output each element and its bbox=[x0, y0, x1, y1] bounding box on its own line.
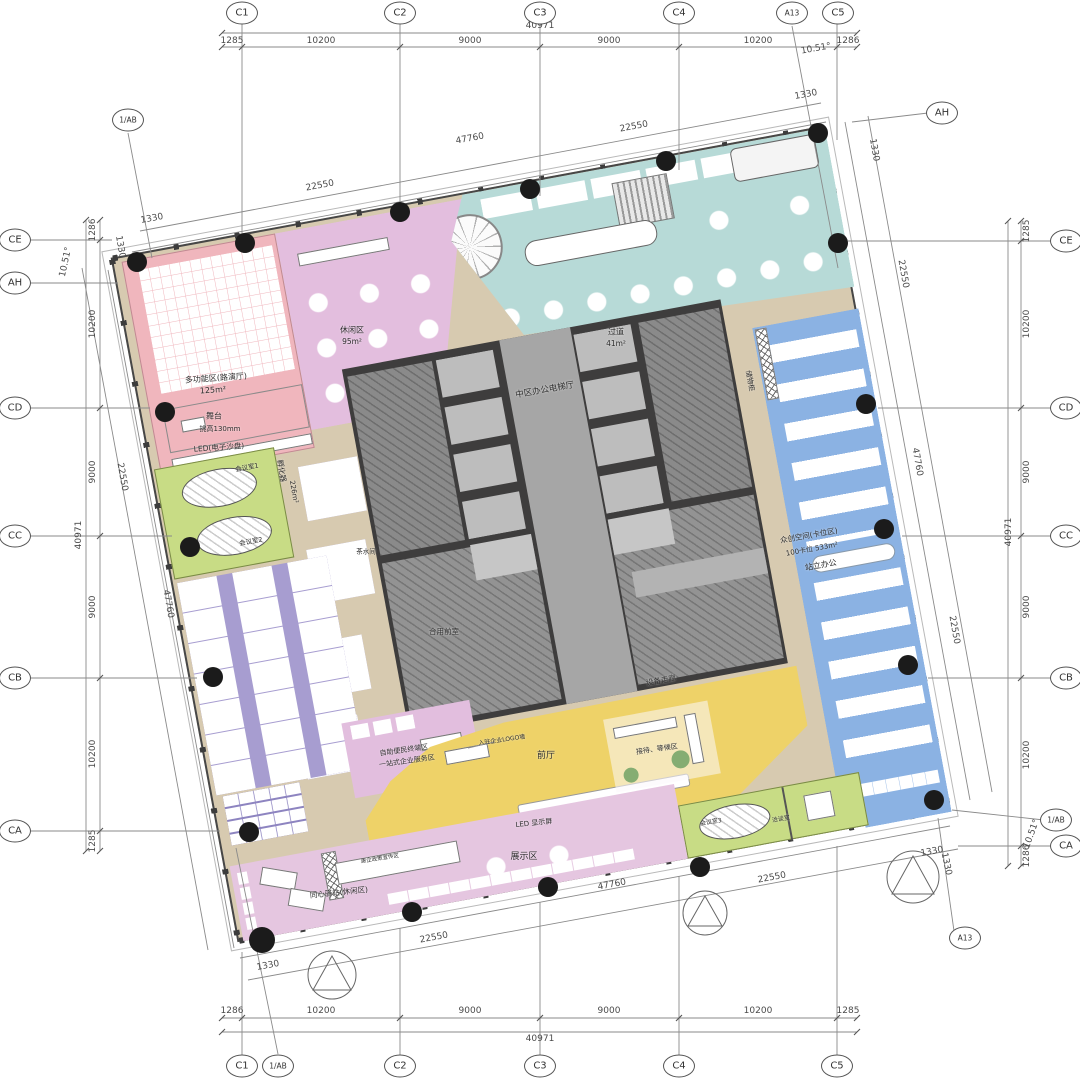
dim-label: 10200 bbox=[744, 1006, 773, 1016]
black-dot-marker bbox=[127, 252, 147, 272]
grid-bubble-ca: CA bbox=[0, 820, 31, 843]
zone-label-tea_room: 茶水间 bbox=[356, 548, 376, 555]
dim-label: 9000 bbox=[88, 461, 98, 484]
black-dot-marker bbox=[690, 857, 710, 877]
zone-label-stage: 挑高130mm bbox=[200, 426, 241, 434]
section-marker-circle bbox=[683, 891, 727, 935]
black-dot-marker bbox=[520, 179, 540, 199]
dim-label: 9000 bbox=[459, 36, 482, 46]
grid-bubble-a13: A13 bbox=[949, 927, 981, 950]
black-dot-marker bbox=[390, 202, 410, 222]
annotation-line bbox=[845, 122, 970, 800]
grid-bubble-c5: C5 bbox=[821, 1055, 853, 1078]
grid-bubble-ce: CE bbox=[0, 229, 31, 252]
zone-label-corridor: 41m² bbox=[606, 340, 626, 348]
grid-bubble-c3: C3 bbox=[524, 2, 556, 25]
grid-bubble-ca: CA bbox=[1050, 835, 1080, 858]
dim-label: 1285 bbox=[837, 1006, 860, 1016]
annotation-line bbox=[852, 113, 928, 122]
dim-label: 9000 bbox=[1022, 596, 1032, 619]
black-dot-marker bbox=[239, 822, 259, 842]
grid-bubble-1ab: 1/AB bbox=[112, 109, 144, 132]
black-dot-marker bbox=[924, 790, 944, 810]
grid-bubble-cc: CC bbox=[0, 525, 31, 548]
floor-plan-canvas: C1C2C3C4A13C5C11/ABC2C3C4C5CEAHCDCCCBCAC… bbox=[0, 0, 1080, 1080]
grid-bubble-c1: C1 bbox=[226, 2, 258, 25]
dim-label: 10200 bbox=[307, 1006, 336, 1016]
grid-bubble-ce: CE bbox=[1050, 230, 1080, 253]
section-marker-triangle bbox=[313, 956, 351, 990]
grid-bubble-c5: C5 bbox=[822, 2, 854, 25]
black-dot-marker bbox=[235, 233, 255, 253]
annotation-line bbox=[952, 810, 1044, 820]
black-dot-marker bbox=[874, 519, 894, 539]
dim-label: 10200 bbox=[88, 740, 98, 769]
dim-label: 40971 bbox=[74, 521, 84, 550]
dim-label: 9000 bbox=[598, 36, 621, 46]
dim-label: 1285 bbox=[88, 830, 98, 853]
grid-bubble-1ab: 1/AB bbox=[262, 1055, 294, 1078]
grid-bubble-cb: CB bbox=[0, 667, 31, 690]
annotation-line bbox=[868, 116, 992, 792]
black-dot-marker bbox=[808, 123, 828, 143]
dim-label: 9000 bbox=[459, 1006, 482, 1016]
grid-bubble-c3: C3 bbox=[524, 1055, 556, 1078]
grid-bubble-c4: C4 bbox=[663, 2, 695, 25]
dim-label: 10200 bbox=[307, 36, 336, 46]
grid-bubble-cd: CD bbox=[0, 397, 31, 420]
dim-label: 9000 bbox=[88, 596, 98, 619]
black-dot-marker bbox=[402, 902, 422, 922]
grid-bubble-cb: CB bbox=[1050, 667, 1080, 690]
grid-bubble-c2: C2 bbox=[384, 1055, 416, 1078]
dim-label: 9000 bbox=[1022, 461, 1032, 484]
section-marker-circle bbox=[308, 951, 356, 999]
black-dot-marker bbox=[828, 233, 848, 253]
zone-label-exhibition: 展示区 bbox=[510, 853, 537, 863]
annotation-line bbox=[938, 818, 955, 938]
black-dot-marker bbox=[898, 655, 918, 675]
annotation-line bbox=[248, 849, 958, 980]
black-dot-marker bbox=[203, 667, 223, 687]
grid-bubble-ah: AH bbox=[0, 272, 31, 295]
dim-label: 10200 bbox=[88, 310, 98, 339]
dim-label: 10200 bbox=[744, 36, 773, 46]
zone-label-corridor: 过道 bbox=[608, 329, 624, 338]
zone-label-multifunction: 125m² bbox=[200, 386, 227, 397]
grid-bubble-a13: A13 bbox=[776, 2, 808, 25]
dim-label: 40971 bbox=[526, 1034, 555, 1044]
black-dot-marker bbox=[180, 537, 200, 557]
grid-bubble-c1: C1 bbox=[226, 1055, 258, 1078]
black-dot-marker bbox=[538, 877, 558, 897]
grid-bubble-1ab: 1/AB bbox=[1040, 809, 1072, 832]
zone-label-lounge: 95m² bbox=[342, 338, 362, 346]
dim-label: 40971 bbox=[1004, 518, 1014, 547]
grid-bubble-c2: C2 bbox=[384, 2, 416, 25]
grid-bubble-ah: AH bbox=[926, 102, 958, 125]
dim-label: 10200 bbox=[1022, 741, 1032, 770]
zone-label-front_hall: 前厅 bbox=[537, 752, 555, 762]
zone-label-shared_front_room: 合用前室 bbox=[429, 628, 459, 636]
black-dot-marker bbox=[155, 402, 175, 422]
dim-label: 1286 bbox=[837, 36, 860, 46]
dim-label: 9000 bbox=[598, 1006, 621, 1016]
section-marker-triangle bbox=[892, 856, 934, 894]
black-dot-marker bbox=[249, 927, 275, 953]
zone-label-stage: 舞台 bbox=[206, 413, 222, 422]
annotation-line bbox=[128, 133, 152, 258]
dim-label: 1285 bbox=[221, 36, 244, 46]
grid-bubble-c4: C4 bbox=[663, 1055, 695, 1078]
dim-label: 1285 bbox=[1022, 220, 1032, 243]
section-marker-triangle bbox=[688, 896, 722, 926]
dim-label: 1286 bbox=[88, 219, 98, 242]
zone-label-lounge: 休闲区 bbox=[340, 327, 364, 336]
dim-label: 1286 bbox=[221, 1006, 244, 1016]
annotation-line bbox=[792, 26, 838, 268]
black-dot-marker bbox=[856, 394, 876, 414]
grid-bubble-cc: CC bbox=[1050, 525, 1080, 548]
black-dot-marker bbox=[656, 151, 676, 171]
dim-label: 10200 bbox=[1022, 310, 1032, 339]
section-marker-circle bbox=[887, 851, 939, 903]
grid-bubble-cd: CD bbox=[1050, 397, 1080, 420]
annotation-line bbox=[82, 268, 208, 950]
annotation-lines bbox=[0, 0, 1080, 1080]
